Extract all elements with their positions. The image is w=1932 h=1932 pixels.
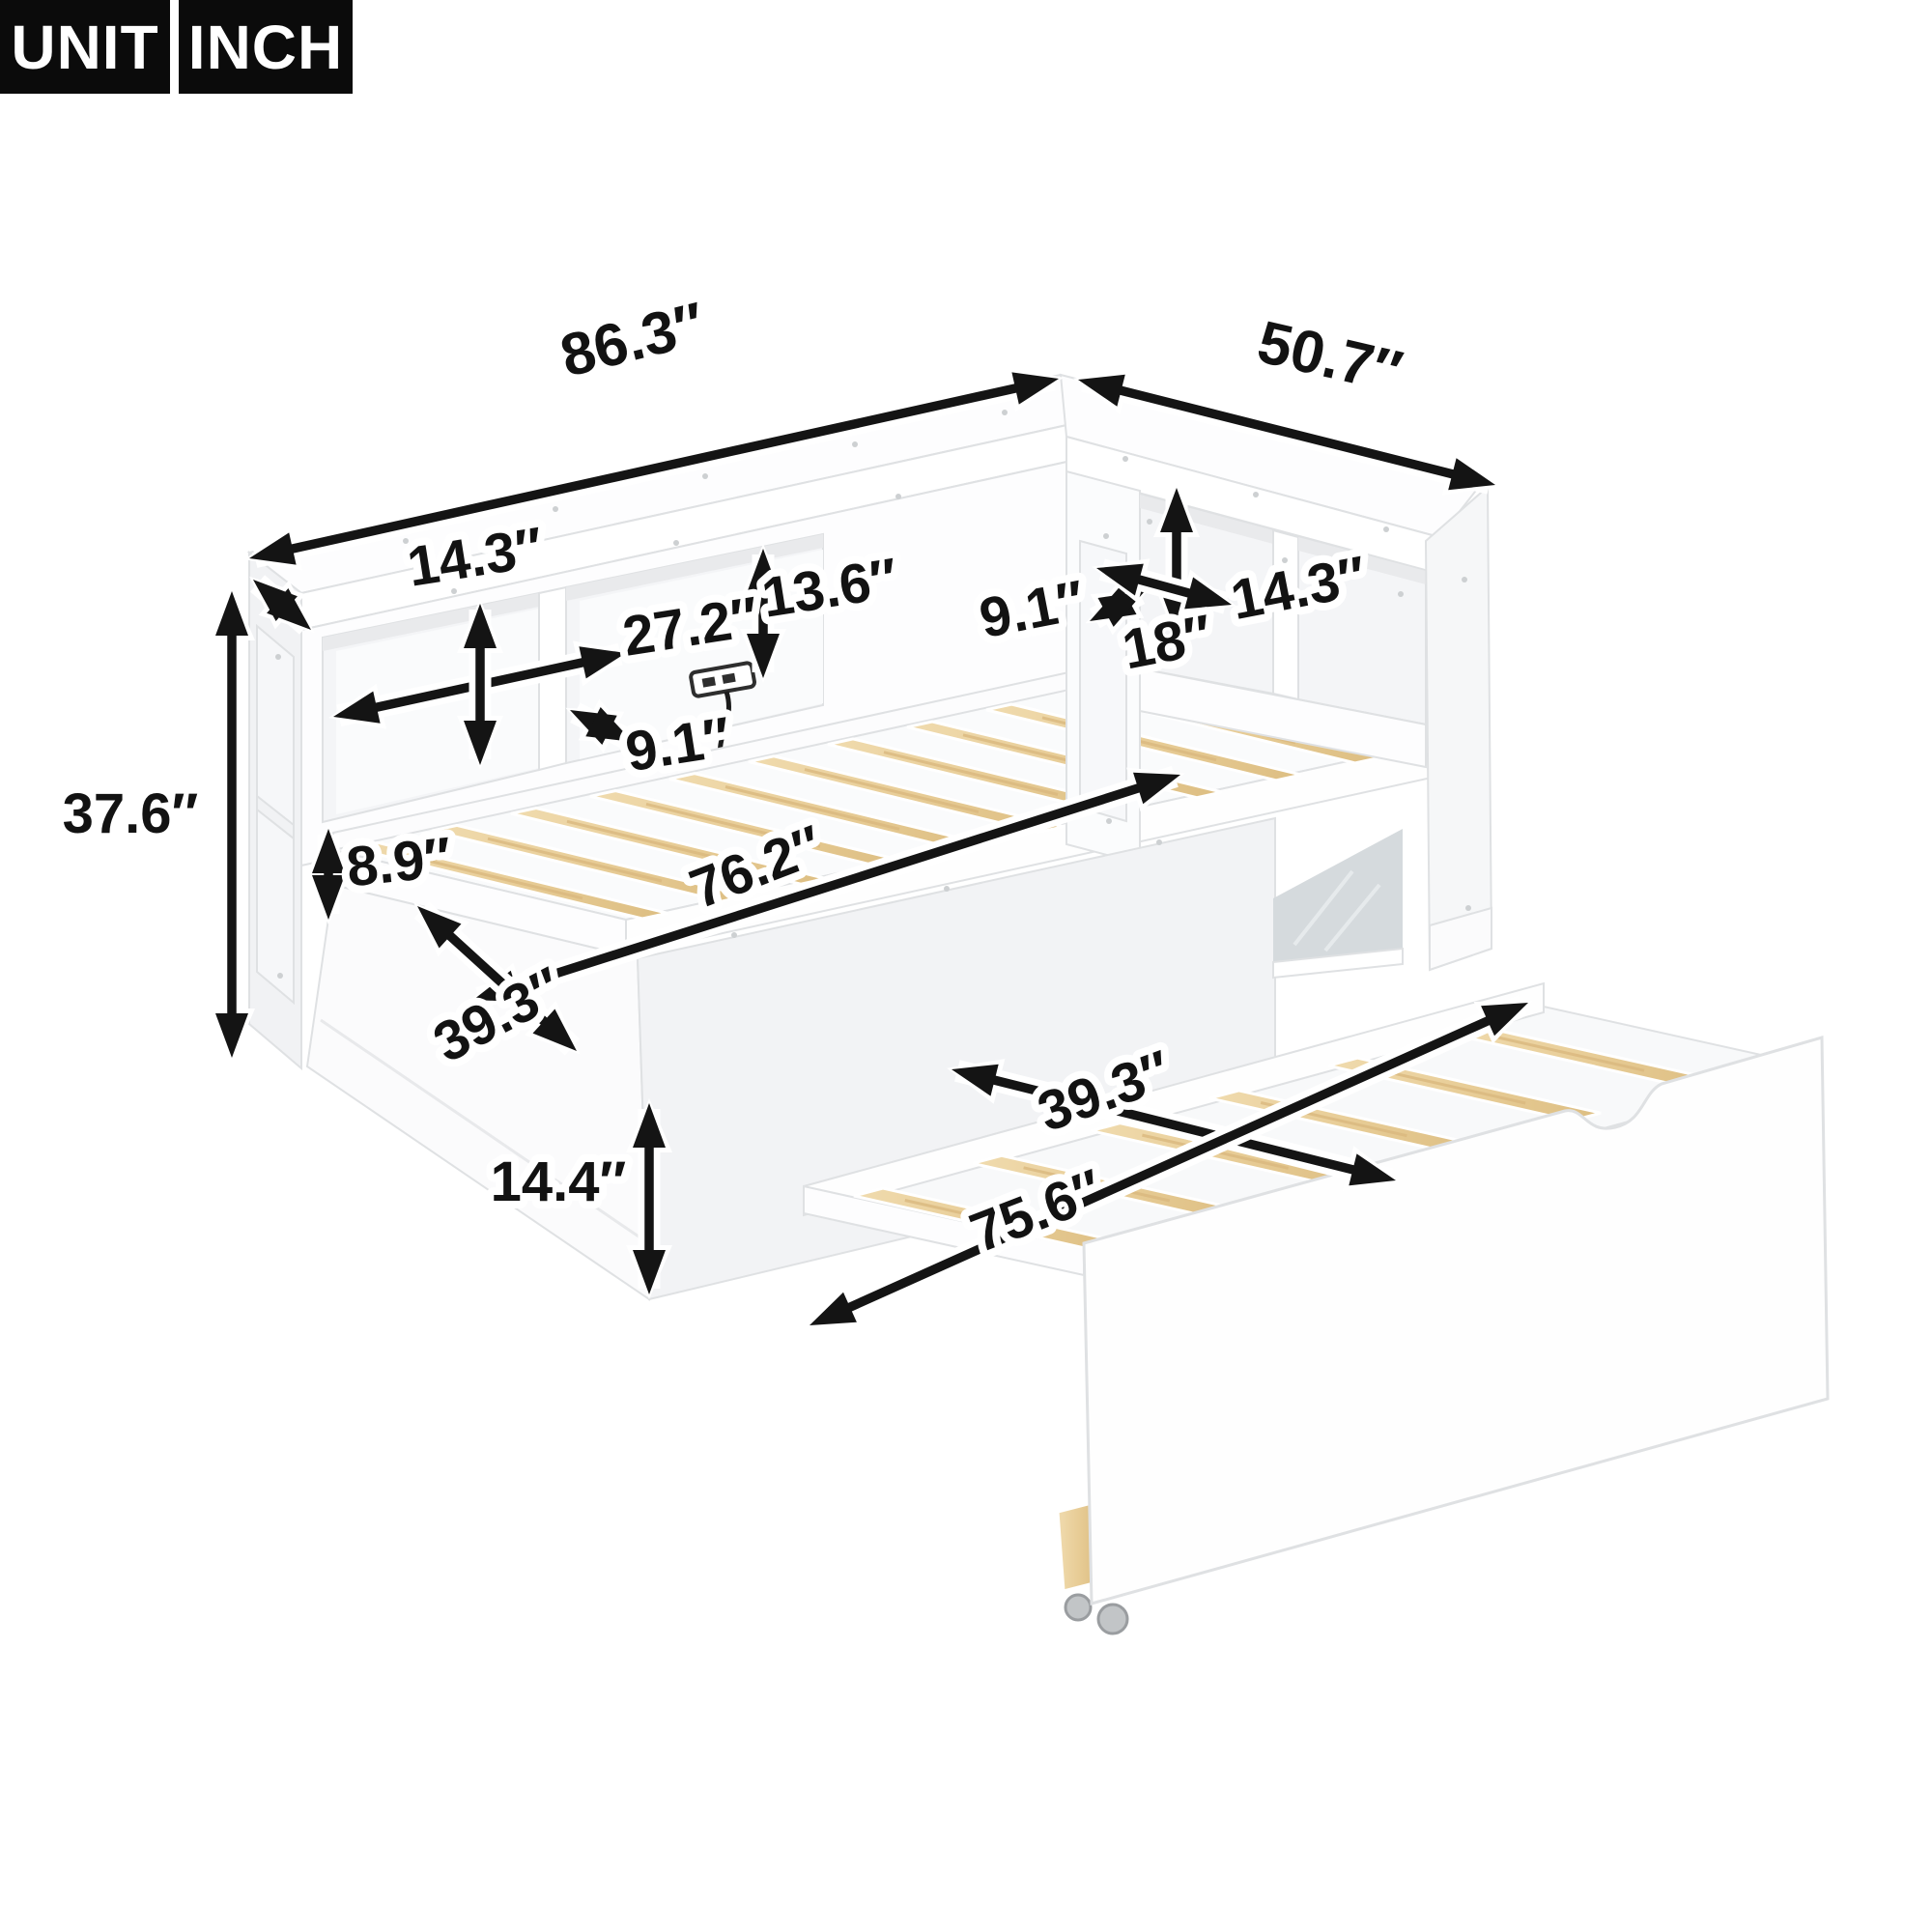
unit-badge-value: INCH [179, 0, 353, 94]
inch-label: INCH [188, 12, 343, 83]
unit-label: UNIT [11, 12, 158, 83]
caster-wheel [1098, 1605, 1127, 1634]
trundle-opening [1273, 829, 1403, 978]
dimension-label-trundle-height: 14.4″ [491, 1151, 627, 1213]
dimension-label-overall-width: 50.7″ [1252, 308, 1408, 406]
unit-badge: UNIT INCH [0, 0, 353, 94]
dimension-label-overall-height: 37.6″ [63, 782, 199, 845]
product-dimension-diagram: UNIT INCH [0, 0, 1932, 1932]
dimension-label-overall-length: 86.3″ [554, 290, 712, 389]
unit-badge-label: UNIT [0, 0, 170, 94]
dimension-label-rail-height: 8.9″ [344, 826, 455, 899]
diagram-scene: 86.3″50.7″14.3″27.2″13.6″9.1″9.1″18″14.3… [0, 0, 1932, 1932]
caster-wheel [1065, 1595, 1091, 1620]
right-end-post [1426, 487, 1492, 970]
dimension-arrow-overall-height [209, 586, 255, 1063]
